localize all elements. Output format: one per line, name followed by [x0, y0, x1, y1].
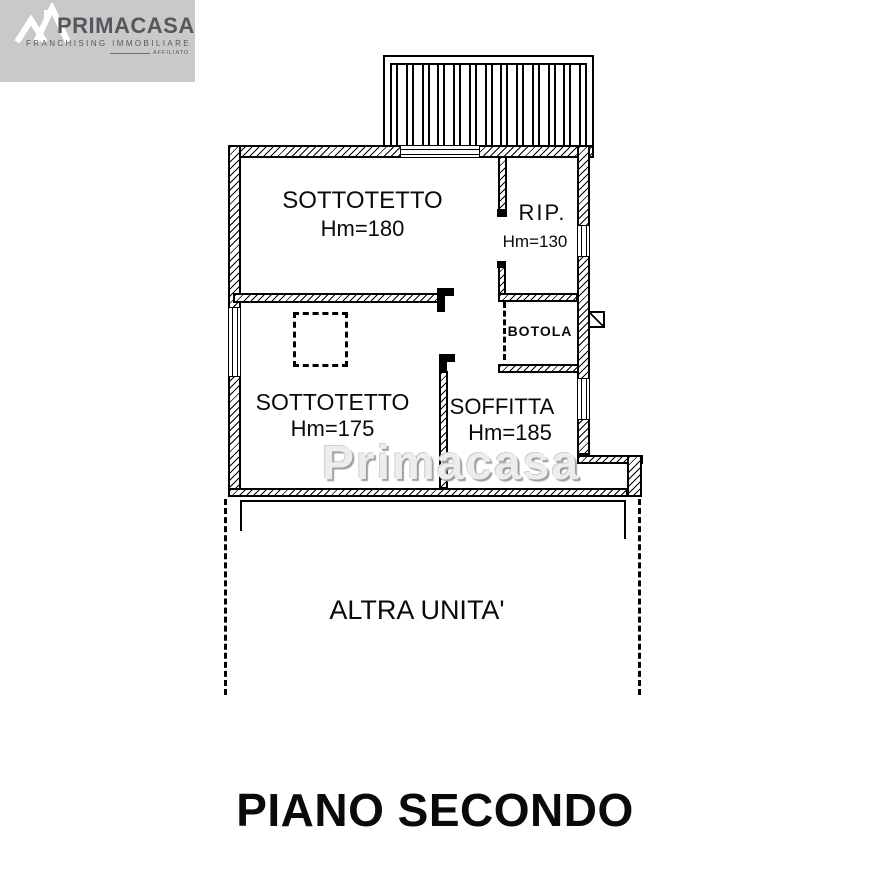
room-label-soffitta: SOFFITTA: [447, 395, 557, 419]
roof-opening-dashed-square: [293, 312, 348, 367]
flue-symbol: [588, 311, 605, 328]
door-jamb-1-flag: [445, 288, 454, 296]
room-height-rip: Hm=130: [495, 233, 575, 252]
label-botola: BOTOLA: [505, 324, 575, 339]
other-unit-dashed-right: [638, 499, 641, 695]
door-jamb-2-flag: [447, 354, 455, 362]
room-label-sottotetto-2: SOTTOTETTO: [250, 390, 415, 415]
window-rip: [577, 225, 590, 257]
other-unit-right-stub: [624, 500, 626, 539]
primacasa-watermark: Primacasa: [322, 436, 580, 491]
floorplan-page: PRIMACASA FRANCHISING IMMOBILIARE AFFILI…: [0, 0, 870, 892]
wall-step-right: [627, 455, 642, 497]
balcony-door-sill: [400, 145, 480, 158]
primacasa-logo: PRIMACASA FRANCHISING IMMOBILIARE AFFILI…: [0, 0, 195, 82]
wall-cap-rip-lower: [497, 261, 506, 268]
door-jamb-2: [439, 354, 447, 372]
logo-affiliato-text: AFFILIATO: [153, 50, 189, 56]
window-left-wall: [228, 307, 241, 377]
window-soffitta: [577, 378, 590, 420]
balcony-railing: [383, 55, 594, 147]
room-label-sottotetto-1: SOTTOTETTO: [270, 188, 455, 214]
label-altra-unita: ALTRA UNITA': [317, 596, 517, 626]
logo-divider-line: [110, 53, 150, 54]
floor-title: PIANO SECONDO: [0, 783, 870, 837]
balcony-rail-bars: [390, 63, 587, 145]
wall-below-rip: [498, 293, 578, 302]
room-height-sottotetto-1: Hm=180: [270, 217, 455, 241]
logo-brand-text: PRIMACASA: [57, 13, 195, 39]
other-unit-left-stub: [240, 500, 242, 531]
logo-tagline-text: FRANCHISING IMMOBILIARE: [26, 39, 191, 48]
wall-below-botola: [498, 364, 579, 373]
other-unit-dashed-left: [224, 499, 227, 695]
room-label-rip: RIP.: [505, 201, 580, 225]
door-jamb-1: [437, 288, 445, 312]
other-unit-top-line: [240, 500, 626, 502]
wall-interior-h1: [233, 293, 439, 303]
